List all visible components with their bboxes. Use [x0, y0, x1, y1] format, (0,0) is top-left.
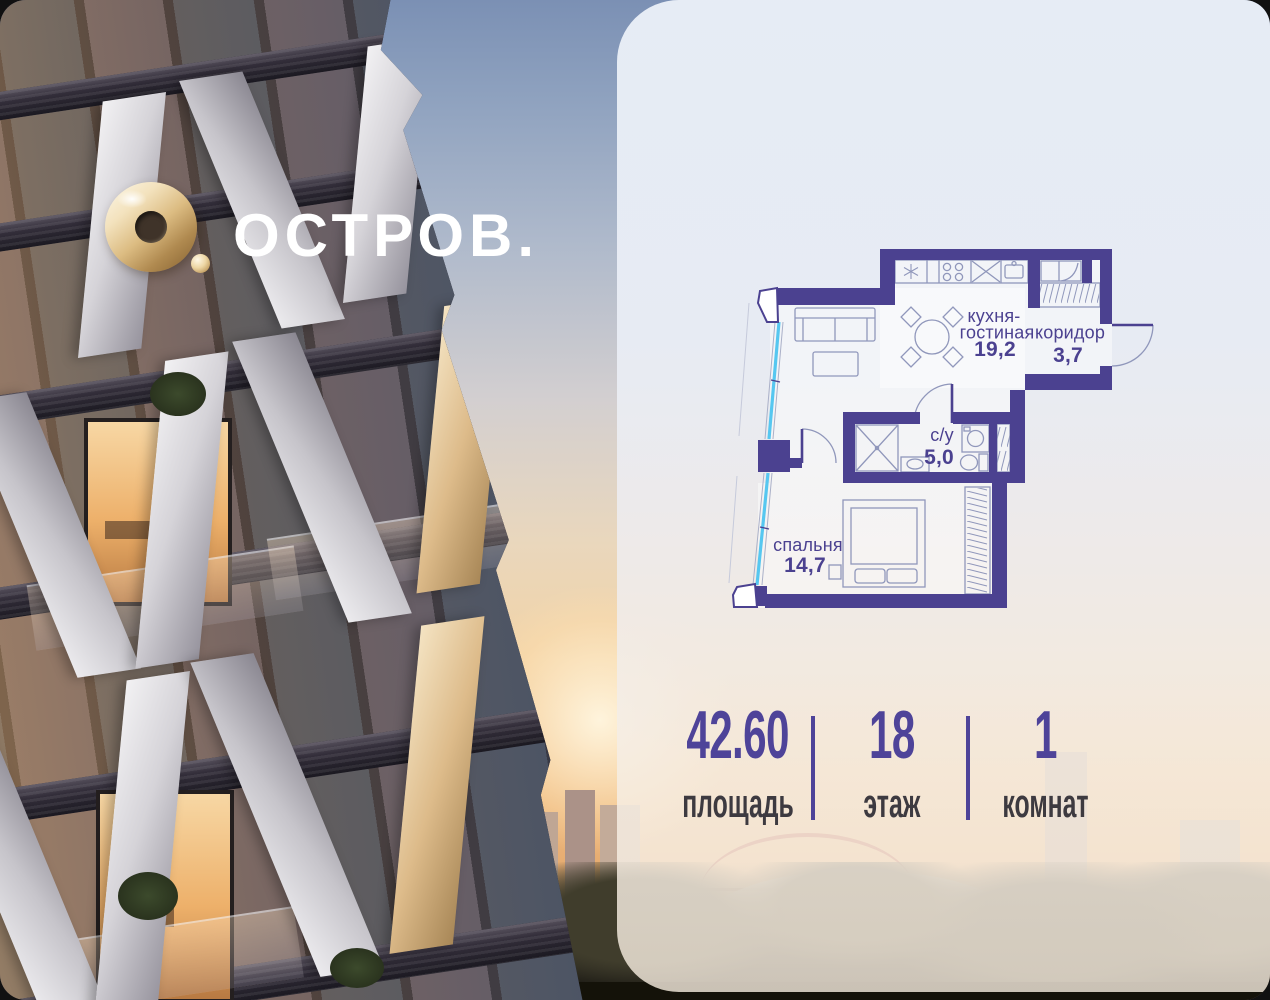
stat-floor-label: этаж	[864, 784, 921, 824]
room-label-bedroom: спальня	[773, 535, 843, 555]
door-arc	[1112, 325, 1153, 366]
stat-rooms-label: комнат	[1002, 784, 1088, 824]
room-label-corridor: коридор	[1035, 323, 1105, 343]
room-area-corridor: 3,7	[1053, 344, 1083, 367]
balcony-plant	[150, 372, 206, 416]
wardrobe-hatch	[1037, 283, 1100, 307]
corner-bay	[758, 288, 778, 322]
stat-rooms: 1 комнат	[960, 702, 1130, 824]
duct	[997, 424, 1010, 472]
stat-rooms-value: 1	[1034, 702, 1057, 768]
floor-plan: кухня- гостиная 19,2 коридор 3,7 с/у 5,0…	[725, 233, 1170, 618]
bedroom-wardrobe-hatch	[965, 487, 990, 594]
stat-area: 42.60 площадь	[653, 702, 823, 824]
room-area-bathroom: 5,0	[924, 446, 954, 469]
brand-name: ОСТРОВ.	[233, 206, 539, 266]
balcony-plant	[330, 948, 384, 988]
stat-floor-value: 18	[869, 702, 915, 768]
room-label-bathroom: с/у	[930, 425, 954, 445]
stat-area-label: площадь	[682, 784, 794, 824]
stat-floor: 18 этаж	[807, 702, 977, 824]
corner-bay	[733, 584, 757, 607]
logo-ring-icon	[105, 182, 197, 272]
room-area-bedroom: 14,7	[784, 554, 826, 577]
stat-area-value: 42.60	[687, 702, 789, 768]
balcony-plant	[118, 872, 178, 920]
logo-ring-hole	[135, 211, 167, 243]
room-area-kitchen-living: 19,2	[974, 338, 1016, 361]
listing-card: ОСТРОВ.	[0, 0, 1270, 1000]
logo-dot-icon	[191, 254, 210, 273]
